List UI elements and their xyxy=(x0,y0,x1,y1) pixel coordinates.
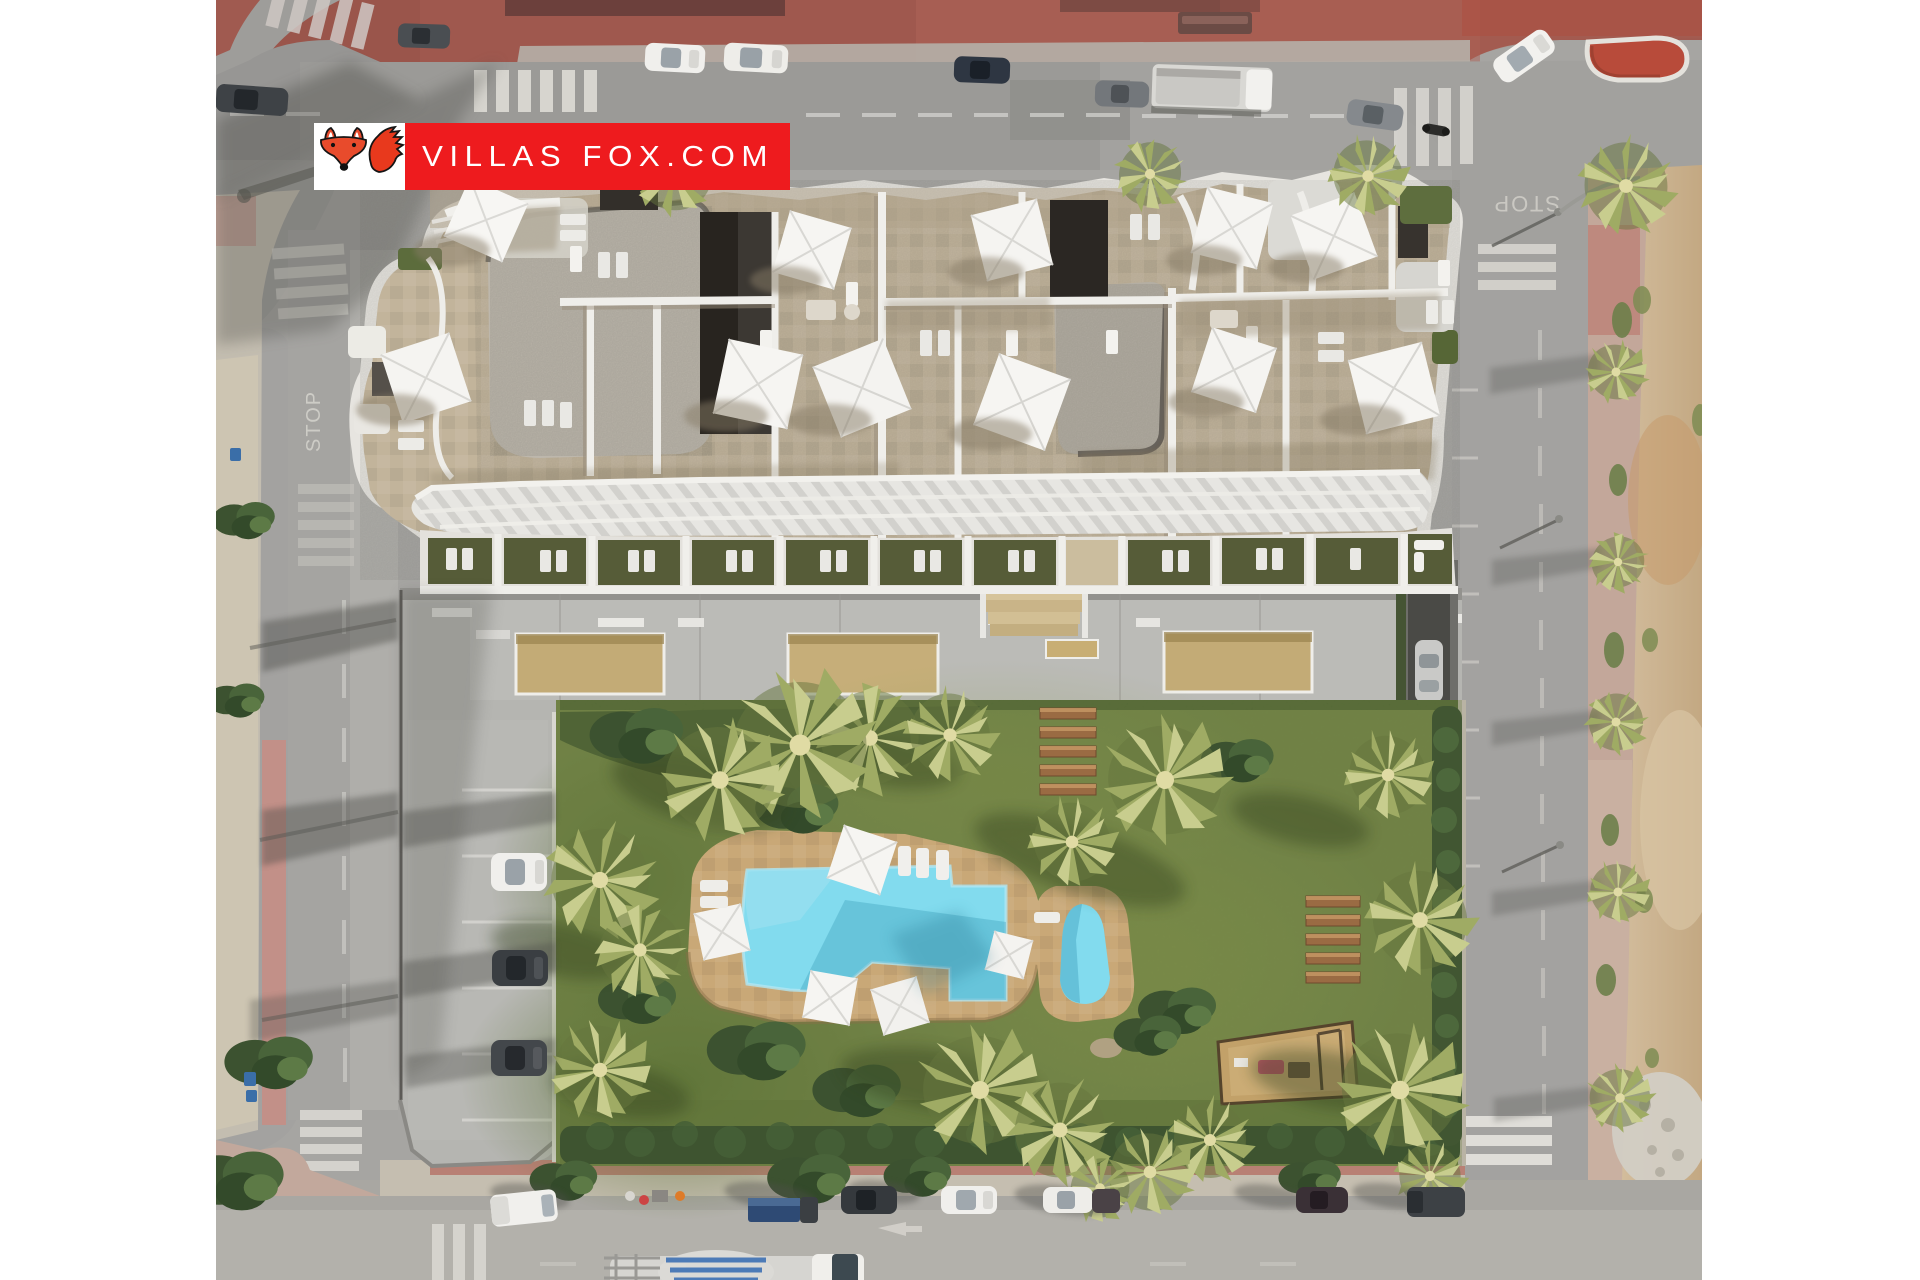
svg-text:STOP: STOP xyxy=(1492,191,1560,216)
svg-text:VILLAS FOX.COM: VILLAS FOX.COM xyxy=(422,141,774,173)
svg-text:STOP: STOP xyxy=(303,390,325,452)
